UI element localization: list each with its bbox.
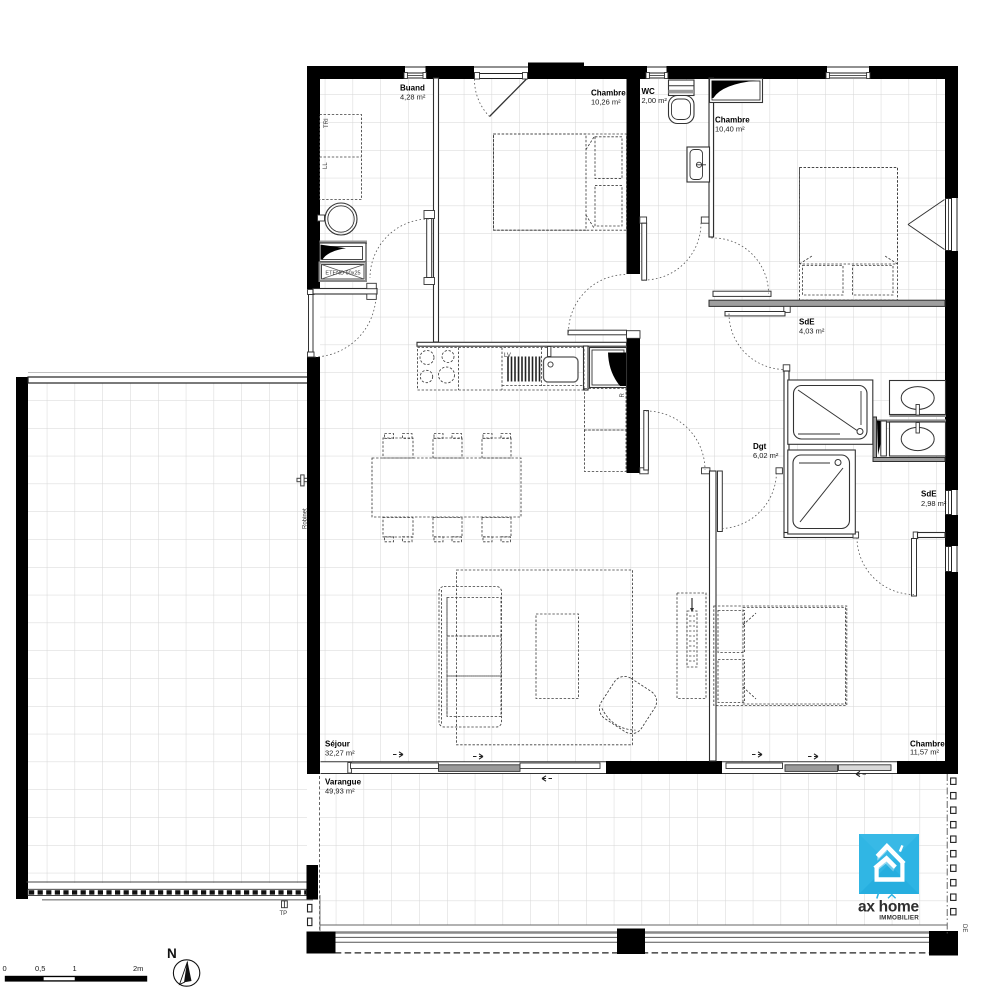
svg-text:R: R — [620, 393, 626, 398]
svg-text:10,26 m²: 10,26 m² — [591, 98, 621, 107]
svg-text:4,03 m²: 4,03 m² — [799, 327, 825, 336]
svg-text:Chambre: Chambre — [715, 116, 750, 125]
svg-text:WC: WC — [642, 87, 656, 96]
svg-text:SdE: SdE — [799, 318, 815, 327]
svg-text:0,5: 0,5 — [35, 964, 45, 973]
svg-text:2,00 m²: 2,00 m² — [642, 96, 668, 105]
svg-text:Chambre: Chambre — [591, 89, 626, 98]
svg-text:Buand: Buand — [400, 84, 425, 93]
svg-text:ETEND 60x25: ETEND 60x25 — [325, 271, 360, 277]
svg-text:6,02 m²: 6,02 m² — [753, 451, 779, 460]
svg-text:Dgt: Dgt — [753, 442, 767, 451]
svg-text:1: 1 — [73, 964, 77, 973]
svg-text:ax home: ax home — [858, 899, 919, 916]
svg-text:0: 0 — [3, 964, 7, 973]
svg-text:SdE: SdE — [921, 490, 937, 499]
svg-text:Séjour: Séjour — [325, 740, 350, 749]
svg-text:4,28 m²: 4,28 m² — [400, 93, 426, 102]
svg-text:N: N — [167, 946, 177, 961]
svg-text:32,27 m²: 32,27 m² — [325, 749, 355, 758]
svg-text:IMMOBILIER: IMMOBILIER — [879, 915, 919, 922]
svg-text:11,57 m²: 11,57 m² — [910, 748, 940, 757]
svg-text:49,93 m²: 49,93 m² — [325, 787, 355, 796]
svg-text:DE: DE — [961, 924, 967, 932]
svg-text:10,40 m²: 10,40 m² — [715, 125, 745, 134]
svg-text:TRI: TRI — [324, 118, 330, 128]
svg-text:TP: TP — [280, 911, 288, 917]
svg-text:LL: LL — [323, 162, 329, 169]
svg-text:2,98 m²: 2,98 m² — [921, 499, 947, 508]
svg-text:2m: 2m — [133, 964, 143, 973]
svg-text:Varangue: Varangue — [325, 778, 362, 787]
